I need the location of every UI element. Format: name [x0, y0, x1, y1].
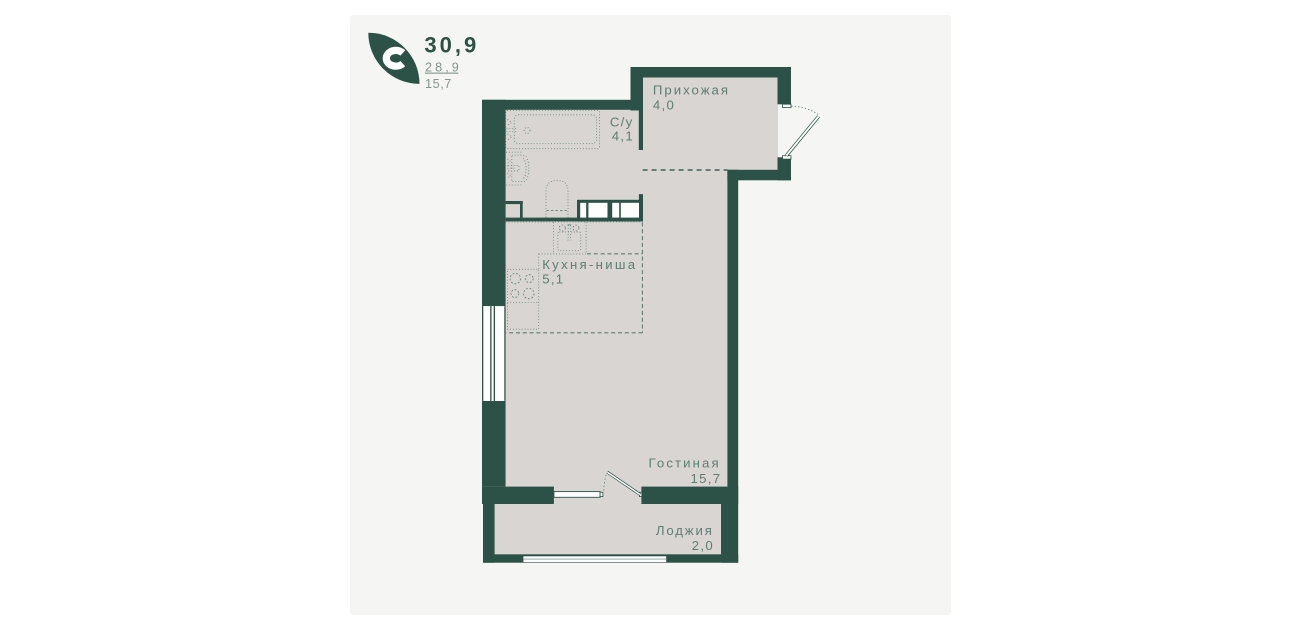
svg-text:28,9: 28,9: [425, 61, 462, 75]
svg-text:30,9: 30,9: [424, 32, 479, 57]
svg-text:С/у: С/у: [610, 114, 634, 129]
svg-text:2,0: 2,0: [692, 538, 714, 553]
svg-text:15,7: 15,7: [425, 77, 452, 91]
svg-text:Лоджия: Лоджия: [656, 523, 714, 538]
svg-text:4,0: 4,0: [653, 97, 675, 112]
svg-text:15,7: 15,7: [691, 471, 722, 486]
svg-text:Кухня-ниша: Кухня-ниша: [542, 257, 637, 272]
svg-text:Гостиная: Гостиная: [649, 455, 721, 470]
svg-text:Прихожая: Прихожая: [653, 82, 730, 97]
svg-text:4,1: 4,1: [612, 129, 634, 144]
svg-text:5,1: 5,1: [542, 272, 564, 287]
